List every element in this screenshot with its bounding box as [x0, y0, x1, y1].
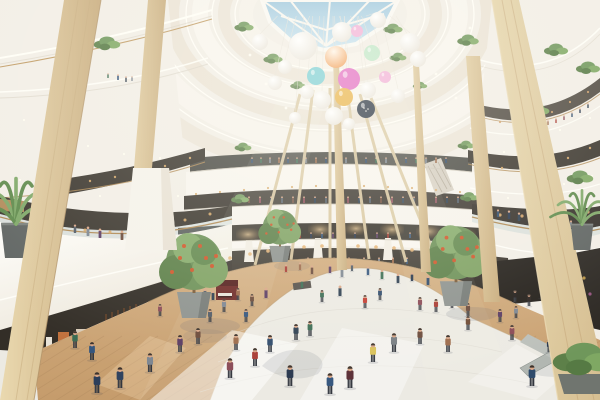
light-dot: [520, 214, 523, 217]
person: [387, 232, 389, 238]
balloon: [338, 68, 360, 90]
person: [99, 229, 102, 239]
person: [325, 157, 327, 163]
light-dot: [559, 129, 561, 131]
person: [380, 196, 382, 203]
balloon-highlight: [367, 47, 371, 52]
person: [571, 112, 572, 117]
light-dot: [87, 145, 89, 147]
light-dot: [589, 147, 591, 149]
light-dot: [114, 176, 116, 178]
person: [87, 227, 90, 237]
person: [332, 232, 334, 238]
balloon: [351, 25, 363, 37]
balloon-logo: [367, 108, 369, 110]
balloon: [252, 34, 268, 50]
light-dot: [195, 193, 197, 195]
balloon-highlight: [382, 73, 385, 77]
person: [347, 196, 349, 203]
light-dot: [499, 121, 501, 123]
light-dot: [99, 195, 101, 197]
person: [563, 115, 564, 120]
light-dot: [184, 219, 187, 222]
person: [555, 118, 556, 123]
light-dot: [587, 91, 589, 93]
person: [117, 74, 119, 80]
light-dot: [588, 292, 591, 295]
balloon-highlight: [343, 71, 348, 78]
light-dot: [84, 229, 87, 232]
person: [587, 103, 588, 108]
person: [315, 157, 317, 163]
person: [310, 232, 312, 238]
light-dot: [374, 245, 378, 249]
person: [314, 196, 316, 203]
person: [354, 232, 356, 238]
tree-shadow: [274, 261, 310, 271]
light-dot: [392, 246, 396, 250]
balloon: [357, 100, 375, 118]
person: [518, 212, 521, 221]
person: [121, 231, 124, 241]
person: [445, 157, 447, 163]
person: [125, 76, 127, 82]
light-dot: [356, 244, 360, 248]
person: [303, 196, 305, 203]
light-dot: [320, 244, 324, 248]
balloon: [278, 60, 292, 74]
person: [446, 196, 448, 203]
balloon-highlight: [354, 27, 357, 31]
balloon: [325, 107, 343, 125]
light-dot: [589, 117, 591, 119]
person: [579, 108, 580, 113]
light-dot: [89, 180, 91, 182]
balloon: [335, 88, 353, 106]
balloon: [300, 85, 314, 99]
balloon: [307, 67, 325, 85]
light-dot: [459, 191, 461, 193]
person: [365, 157, 367, 163]
person: [497, 209, 499, 217]
balloon-logo: [363, 107, 365, 109]
atrium-scene: [0, 0, 600, 400]
light-dot: [123, 153, 125, 155]
light-dot: [164, 165, 166, 167]
light-dot: [209, 213, 212, 216]
balloon-highlight: [311, 70, 315, 75]
light-dot: [503, 151, 505, 153]
balloon: [289, 112, 301, 124]
balloon: [400, 33, 420, 53]
light-dot: [567, 157, 569, 159]
person: [508, 210, 511, 219]
balloon: [391, 89, 405, 103]
person: [547, 120, 548, 125]
light-dot: [551, 111, 553, 113]
balloon: [410, 51, 426, 67]
light-dot: [582, 276, 585, 279]
balloon: [343, 118, 355, 130]
balloon: [289, 32, 317, 60]
mall-atrium-render: [0, 0, 600, 400]
light-dot: [302, 245, 306, 249]
person: [325, 196, 327, 203]
person: [435, 157, 437, 163]
light-dot: [501, 167, 503, 169]
light-dot: [563, 183, 565, 185]
light-dot: [363, 185, 365, 187]
balloon: [332, 22, 352, 42]
light-dot: [249, 54, 252, 57]
light-dot: [569, 101, 571, 103]
balloon: [313, 91, 331, 109]
light-dot: [23, 119, 25, 121]
person: [345, 157, 347, 163]
person: [74, 224, 77, 233]
balloon-highlight: [339, 91, 343, 96]
light-dot: [19, 179, 21, 181]
person: [369, 196, 371, 203]
light-dot: [159, 157, 161, 159]
light-dot: [177, 195, 179, 197]
light-dot: [109, 231, 112, 234]
balloon: [370, 12, 386, 28]
balloon: [268, 76, 282, 90]
person: [457, 196, 459, 203]
light-dot: [435, 73, 438, 76]
balloon: [379, 71, 391, 83]
light-dot: [455, 97, 458, 100]
light-dot: [507, 197, 509, 199]
light-dot: [469, 27, 472, 30]
tree-shadow: [180, 318, 240, 334]
light-dot: [315, 185, 317, 187]
person: [131, 76, 132, 81]
balloon: [360, 82, 376, 98]
balloon: [325, 46, 347, 68]
light-dot: [189, 157, 191, 159]
light-dot: [265, 83, 268, 86]
person: [321, 232, 323, 238]
balloon: [364, 45, 380, 61]
light-dot: [219, 191, 221, 193]
person: [107, 73, 108, 78]
balloon-logo: [365, 110, 367, 112]
person: [376, 232, 378, 238]
